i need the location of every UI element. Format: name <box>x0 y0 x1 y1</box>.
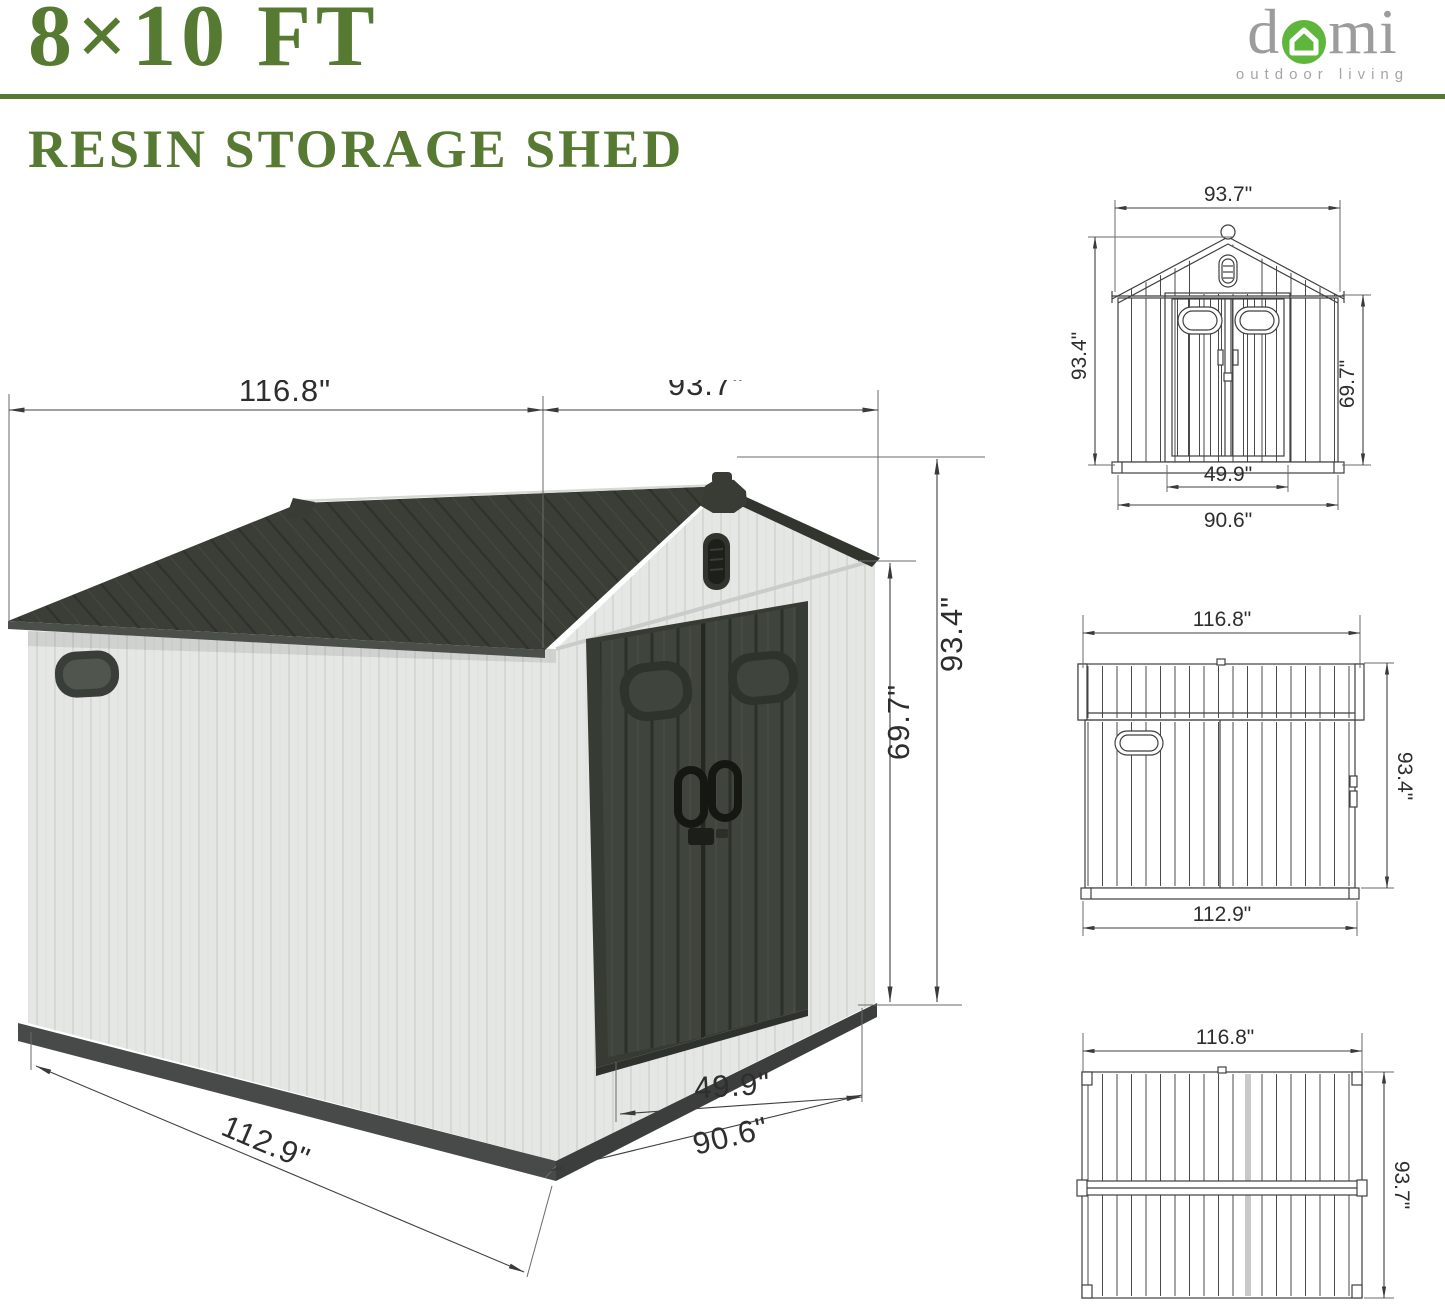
dim-label-front-width: 90.6" <box>689 1110 771 1162</box>
side-wall-window <box>54 649 120 698</box>
side-wall <box>28 631 556 1161</box>
front-dim-height: 93.4" <box>1068 332 1091 380</box>
roof-peak-cap <box>701 472 747 513</box>
dim-label-wall-height: 69.7" <box>881 684 916 760</box>
side-roof-center-tab <box>1217 659 1225 665</box>
side-roof-cap-right <box>1355 664 1364 720</box>
top-plan-drawing <box>1077 1067 1367 1298</box>
side-roof-panels <box>1087 666 1355 718</box>
side-dim-width: 116.8" <box>1193 608 1251 631</box>
plan-dim-length: 116.8" <box>1196 1026 1254 1049</box>
page-subtitle: RESIN STORAGE SHED <box>28 118 684 180</box>
top-plan-view: 116.8" 93.7" <box>1040 1025 1445 1304</box>
side-roof-cap-left <box>1078 664 1087 720</box>
house-logo-icon <box>1281 12 1327 58</box>
side-latch-detail <box>1350 776 1357 807</box>
dim-label-total-width: 116.8" <box>239 380 331 408</box>
side-view-window <box>1115 731 1163 755</box>
front-door-window-left <box>1178 307 1222 334</box>
front-dim-body-width: 90.6" <box>1204 509 1252 532</box>
side-elevation-drawing <box>1078 659 1364 899</box>
front-door-window-right <box>1235 307 1279 334</box>
perspective-shed-drawing: 116.8" 93.7" 69.7" 93.4" 49.9" 90.6" 112… <box>0 380 1045 1304</box>
brand-logo: d mi outdoor living <box>1225 0 1420 83</box>
side-dim-height: 93.4" <box>1393 752 1416 800</box>
gable-vent <box>703 533 730 590</box>
front-doors <box>1165 293 1290 462</box>
dim-label-total-height: 93.4" <box>934 596 969 672</box>
dim-label-total-depth: 93.7" <box>668 380 744 402</box>
side-dim-body-width: 112.9" <box>1193 903 1251 926</box>
front-dim-width: 93.7" <box>1204 185 1252 206</box>
logo-text-mi: mi <box>1328 0 1398 64</box>
plan-ridge-band <box>1077 1180 1367 1196</box>
brand-tagline: outdoor living <box>1225 66 1420 83</box>
dim-label-side-width: 112.9" <box>217 1108 316 1176</box>
dim-label-door-width: 49.9" <box>693 1065 772 1105</box>
plan-top-tab <box>1218 1067 1226 1073</box>
front-vent <box>1219 255 1237 287</box>
double-doors <box>586 601 808 1076</box>
page-title: 8×10 FT <box>28 0 380 87</box>
divider-rule <box>0 94 1445 99</box>
brand-logo-word: d mi <box>1225 0 1420 64</box>
front-elevation-drawing <box>1112 225 1344 473</box>
front-elevation-view: 93.7" 93.4" 69.7" 49.9" 90.6" <box>1040 185 1445 545</box>
side-base <box>1081 888 1359 899</box>
front-dim-door-width: 49.9" <box>1204 463 1252 486</box>
plan-dim-depth: 93.7" <box>1390 1161 1413 1209</box>
side-elevation-view: 116.8" 93.4" 112.9" <box>1040 595 1445 990</box>
front-dim-wall-height: 69.7" <box>1336 360 1359 408</box>
logo-text-d: d <box>1247 0 1280 64</box>
